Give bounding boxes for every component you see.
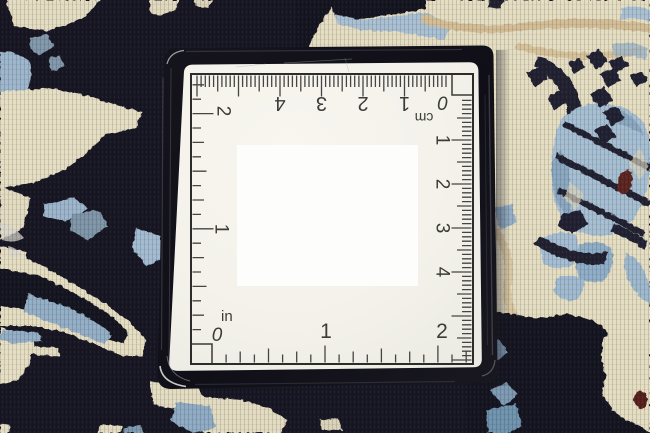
svg-text:4: 4	[432, 267, 453, 278]
svg-text:2: 2	[357, 92, 368, 114]
svg-text:3: 3	[316, 92, 327, 114]
svg-text:0: 0	[437, 92, 448, 113]
svg-text:2: 2	[432, 179, 453, 190]
svg-text:2: 2	[213, 106, 234, 117]
svg-text:1: 1	[320, 320, 332, 343]
svg-text:1: 1	[399, 92, 410, 114]
svg-text:in: in	[221, 308, 233, 325]
svg-text:4: 4	[274, 92, 285, 114]
svg-text:1: 1	[211, 224, 232, 235]
svg-text:3: 3	[432, 223, 453, 234]
svg-text:0: 0	[212, 325, 223, 346]
svg-text:cm: cm	[415, 110, 434, 126]
svg-text:2: 2	[436, 320, 448, 343]
svg-text:1: 1	[432, 135, 453, 146]
